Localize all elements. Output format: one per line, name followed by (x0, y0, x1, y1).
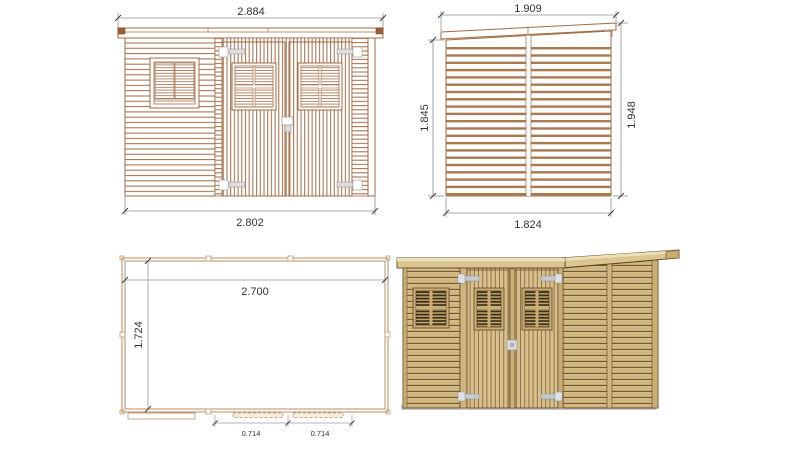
plan-dim-door-left-label: 0.714 (242, 429, 261, 438)
render-side-center-post (607, 263, 612, 408)
side-dim-rear-height: 1.845 (420, 37, 444, 199)
side-dim-front-height: 1.948 (613, 20, 638, 199)
render-latch-icon (507, 340, 517, 350)
drawing-sheet: { "colors": { "background": "#ffffff", "… (0, 0, 794, 446)
render-left-window (413, 288, 449, 328)
front-dim-roof-width: 2.884 (115, 6, 386, 28)
shed-color-rendering (395, 248, 685, 451)
rendering-drawing (395, 248, 685, 446)
side-dim-roof-depth-label: 1.909 (514, 3, 542, 15)
render-door-right-window (522, 288, 552, 330)
render-side-wall (563, 260, 658, 408)
render-door-frame-left (460, 268, 467, 408)
side-wall (446, 31, 611, 196)
front-door-left-window (232, 63, 276, 110)
render-front-face (403, 268, 563, 408)
render-side-corner-trim (652, 260, 658, 408)
front-roof-endcap-right (376, 28, 383, 34)
render-left-corner-trim (403, 268, 407, 408)
side-elevation-view: 1.909 (420, 0, 665, 237)
front-roof (118, 28, 383, 38)
front-dim-wall-width-label: 2.802 (236, 217, 264, 229)
front-dim-wall-width: 2.802 (122, 196, 378, 229)
plan-dim-door-right-label: 0.714 (311, 429, 330, 438)
plan-step-board (128, 413, 195, 419)
side-elevation-drawing: 1.909 (420, 0, 665, 232)
side-wall-center-joint (526, 31, 531, 196)
front-left-window (150, 58, 199, 108)
front-door-right-window (298, 63, 342, 110)
front-roof-endcap-left (118, 28, 125, 34)
front-dim-roof-width-label: 2.884 (237, 6, 265, 18)
plan-dim-door-openings: 0.714 0.714 (213, 415, 355, 438)
side-dim-front-height-label: 1.948 (626, 101, 638, 129)
floor-plan-view: 2.700 1.724 0.714 0.714 (108, 248, 398, 451)
plan-dim-interior-width-label: 2.700 (241, 286, 269, 298)
side-dim-wall-depth: 1.824 (443, 198, 614, 231)
plan-dim-interior-depth-label: 1.724 (133, 321, 145, 349)
front-elevation-view: 2.884 (108, 0, 398, 235)
render-front-roof (397, 258, 565, 268)
floor-plan-drawing: 2.700 1.724 0.714 0.714 (108, 248, 398, 446)
front-right-wall-siding (352, 38, 368, 196)
render-door-left-window (474, 288, 504, 330)
side-dim-wall-depth-label: 1.824 (514, 219, 542, 231)
front-door-frame-left (215, 38, 222, 196)
front-elevation-drawing: 2.884 (108, 0, 398, 230)
render-door-frame-right (558, 268, 563, 408)
front-corner-trim-right (368, 38, 375, 196)
side-dim-rear-height-label: 1.845 (420, 104, 431, 132)
